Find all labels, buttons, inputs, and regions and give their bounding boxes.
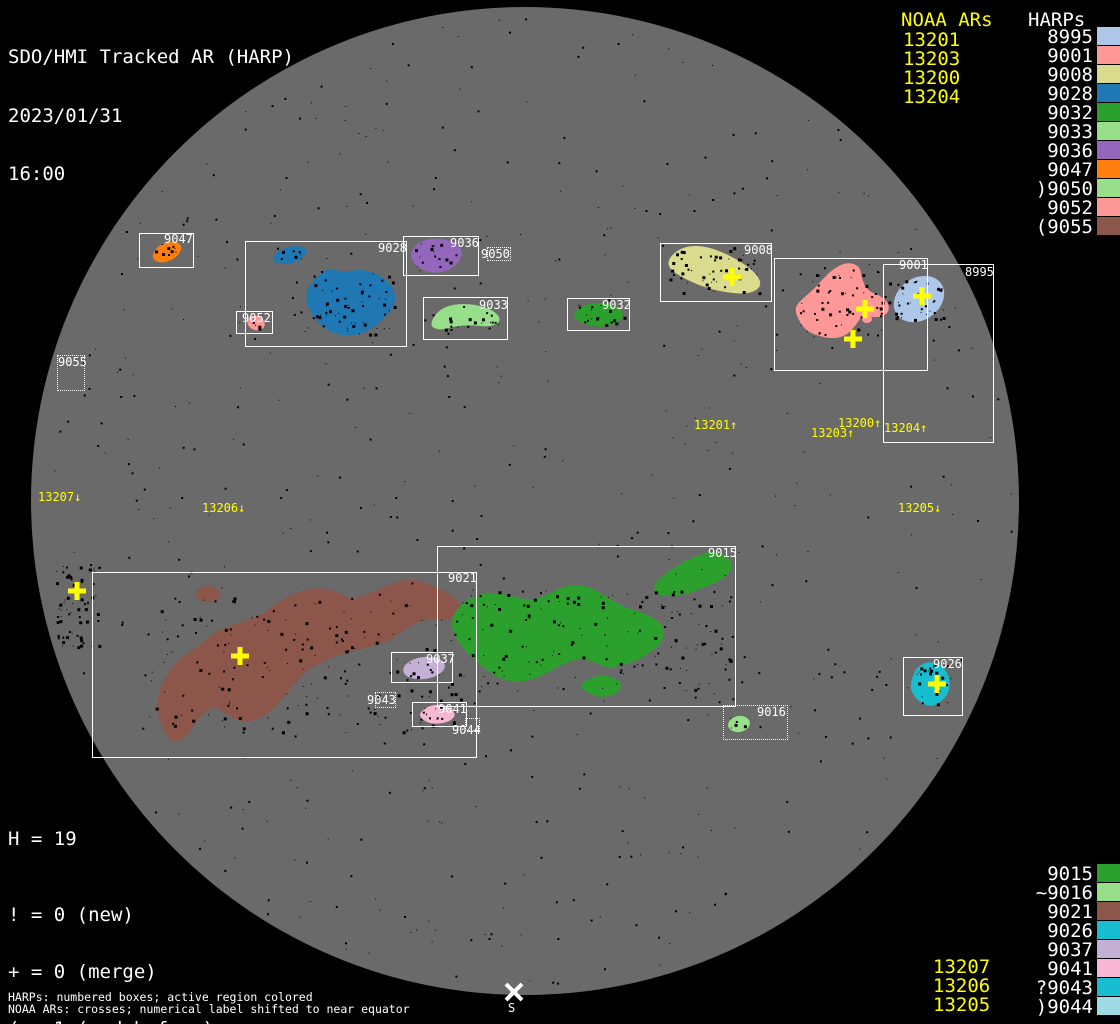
footnote-noaa: NOAA ARs: crosses; numerical label shift… — [8, 1003, 410, 1015]
harp-color-swatch — [1097, 46, 1120, 64]
harp-color-swatch — [1097, 883, 1120, 901]
harp-color-swatch — [1097, 103, 1120, 121]
harp-color-swatch — [1097, 902, 1120, 920]
harp-color-swatch — [1097, 160, 1120, 178]
harp-color-swatch — [1097, 997, 1120, 1015]
harp-color-swatch — [1097, 978, 1120, 996]
harp-box-label-9037: 9037 — [426, 653, 455, 665]
harp-box-label-9016: 9016 — [757, 706, 786, 718]
harp-box-label-9041: 9041 — [438, 703, 467, 715]
harp-box-label-9055: 9055 — [58, 356, 87, 368]
noaa-shifted-label: 13206↓ — [202, 502, 245, 514]
noaa-shifted-label: 13204↑ — [884, 422, 927, 434]
harp-color-swatch — [1097, 217, 1120, 235]
noaa-shifted-label: 13203↑ — [811, 427, 854, 439]
harp-box-9015 — [437, 546, 736, 707]
stat-merge: + = 0 (merge) — [8, 963, 225, 982]
noaa-ars-header: NOAA ARs — [901, 11, 993, 30]
harp-box-label-9047: 9047 — [164, 233, 193, 245]
plot-time: 16:00 — [8, 165, 294, 185]
harp-color-swatch — [1097, 959, 1120, 977]
harp-legend-item: (9055 — [993, 218, 1093, 237]
harp-box-label-9044: 9044 — [452, 724, 481, 736]
noaa-shifted-label: 13201↑ — [694, 419, 737, 431]
harp-box-label-9043: 9043 — [367, 694, 396, 706]
stat-pad-before: ( = 1 (pad before) — [8, 1020, 225, 1024]
harp-box-label-9015: 9015 — [708, 547, 737, 559]
noaa-cross — [68, 582, 86, 600]
harp-box-label-9050: 9050 — [481, 248, 510, 260]
harp-color-swatch — [1097, 940, 1120, 958]
harp-color-swatch — [1097, 179, 1120, 197]
harp-box-label-9008: 9008 — [744, 244, 773, 256]
harp-legend-item: )9044 — [993, 998, 1093, 1017]
harp-color-swatch — [1097, 198, 1120, 216]
harp-color-swatch — [1097, 921, 1120, 939]
harp-box-label-9036: 9036 — [450, 237, 479, 249]
harp-color-swatch — [1097, 122, 1120, 140]
harp-box-label-8995: 8995 — [965, 266, 994, 278]
noaa-shifted-label: 13207↓ — [38, 491, 81, 503]
south-pole-x-icon — [506, 984, 522, 1000]
harp-box-label-9026: 9026 — [933, 658, 962, 670]
harp-box-label-9032: 9032 — [602, 299, 631, 311]
plot-title: SDO/HMI Tracked AR (HARP) — [8, 48, 294, 68]
title-block: SDO/HMI Tracked AR (HARP) 2023/01/31 16:… — [8, 9, 294, 224]
harp-color-swatch — [1097, 84, 1120, 102]
harp-box-label-9033: 9033 — [479, 299, 508, 311]
harp-color-swatch — [1097, 864, 1120, 882]
noaa-shifted-label: 13205↓ — [898, 502, 941, 514]
harp-color-swatch — [1097, 141, 1120, 159]
harp-tracking-plot: 9047902890529036905090339032900890018995… — [0, 0, 1120, 1024]
harp-box-label-9052: 9052 — [242, 312, 271, 324]
noaa-ar-item: 13204 — [903, 88, 960, 107]
noaa-ar-item: 13205 — [933, 996, 990, 1015]
harp-box-8995 — [883, 264, 994, 443]
harp-color-swatch — [1097, 65, 1120, 83]
plot-date: 2023/01/31 — [8, 107, 294, 127]
harp-color-swatch — [1097, 27, 1120, 45]
south-pole-label: S — [508, 1002, 515, 1014]
harp-count: H = 19 — [8, 830, 77, 849]
stat-new: ! = 0 (new) — [8, 906, 225, 925]
